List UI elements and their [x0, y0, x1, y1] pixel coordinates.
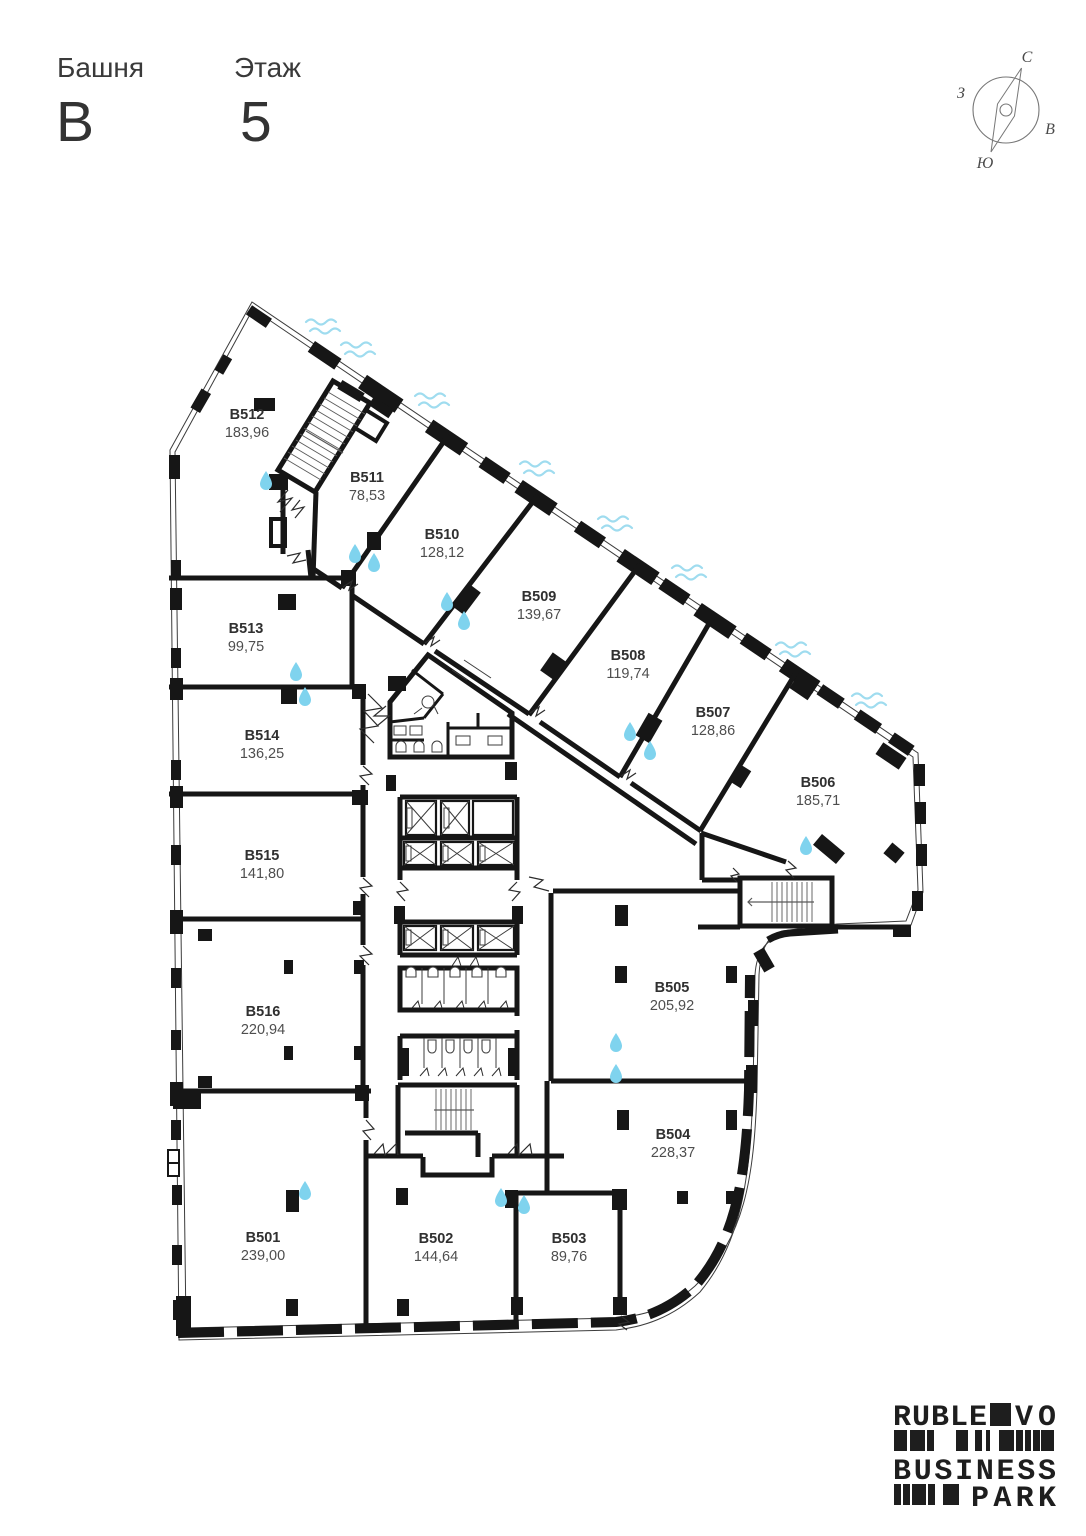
svg-text:183,96: 183,96 — [225, 425, 269, 441]
svg-text:205,92: 205,92 — [650, 998, 694, 1014]
svg-text:144,64: 144,64 — [414, 1249, 458, 1265]
svg-text:Этаж: Этаж — [234, 52, 301, 83]
svg-text:99,75: 99,75 — [228, 639, 264, 655]
svg-text:В516: В516 — [246, 1004, 281, 1020]
svg-text:141,80: 141,80 — [240, 866, 284, 882]
svg-text:В501: В501 — [246, 1230, 281, 1246]
svg-text:RUBLE: RUBLE — [893, 1401, 987, 1435]
svg-text:В: В — [56, 90, 94, 154]
svg-text:220,94: 220,94 — [241, 1022, 285, 1038]
svg-text:В509: В509 — [522, 589, 557, 605]
svg-text:89,76: 89,76 — [551, 1249, 587, 1265]
svg-text:Ю: Ю — [976, 155, 994, 172]
svg-text:С: С — [1022, 49, 1033, 66]
svg-text:139,67: 139,67 — [517, 607, 561, 623]
svg-text:В510: В510 — [425, 527, 460, 543]
svg-text:128,86: 128,86 — [691, 723, 735, 739]
svg-text:В503: В503 — [552, 1231, 587, 1247]
svg-text:Башня: Башня — [57, 52, 144, 83]
svg-text:78,53: 78,53 — [349, 488, 385, 504]
svg-text:В507: В507 — [696, 705, 731, 721]
svg-text:136,25: 136,25 — [240, 746, 284, 762]
svg-text:239,00: 239,00 — [241, 1248, 285, 1264]
svg-text:В: В — [1045, 121, 1055, 138]
svg-text:В514: В514 — [245, 728, 280, 744]
svg-text:В511: В511 — [350, 470, 384, 486]
svg-text:В515: В515 — [245, 848, 280, 864]
svg-text:5: 5 — [240, 90, 272, 154]
svg-text:185,71: 185,71 — [796, 793, 840, 809]
svg-text:В508: В508 — [611, 648, 646, 664]
svg-text:128,12: 128,12 — [420, 545, 464, 561]
svg-text:В504: В504 — [656, 1127, 691, 1143]
svg-text:З: З — [957, 85, 965, 102]
svg-text:119,74: 119,74 — [606, 666, 649, 682]
svg-text:В506: В506 — [801, 775, 836, 791]
svg-text:В512: В512 — [230, 407, 265, 423]
svg-text:В505: В505 — [655, 980, 690, 996]
svg-text:В513: В513 — [229, 621, 264, 637]
svg-text:В502: В502 — [419, 1231, 454, 1247]
svg-text:228,37: 228,37 — [651, 1145, 695, 1161]
